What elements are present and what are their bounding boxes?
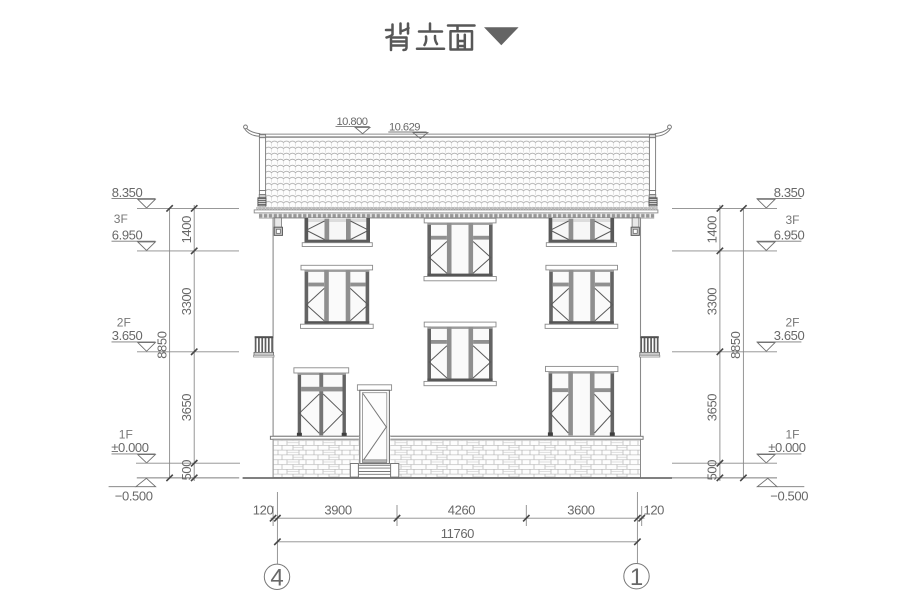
svg-text:−0.500: −0.500: [115, 489, 153, 504]
svg-text:120: 120: [253, 503, 274, 518]
svg-text:8.350: 8.350: [774, 185, 805, 200]
svg-text:1: 1: [630, 564, 643, 591]
svg-text:3300: 3300: [179, 288, 194, 315]
svg-text:3.650: 3.650: [774, 328, 805, 343]
svg-text:11760: 11760: [441, 526, 474, 541]
svg-text:4: 4: [270, 565, 283, 592]
svg-text:6.950: 6.950: [774, 227, 805, 242]
svg-text:500: 500: [705, 460, 720, 481]
svg-text:±0.000: ±0.000: [768, 440, 805, 455]
svg-text:500: 500: [179, 460, 194, 481]
svg-text:8850: 8850: [155, 331, 170, 358]
svg-text:3F: 3F: [786, 213, 800, 227]
svg-text:3900: 3900: [324, 503, 351, 518]
svg-text:±0.000: ±0.000: [111, 440, 148, 455]
svg-text:4260: 4260: [448, 503, 475, 518]
svg-text:8.350: 8.350: [112, 185, 143, 200]
svg-text:−0.500: −0.500: [770, 489, 808, 504]
svg-text:3650: 3650: [179, 394, 194, 421]
svg-text:3650: 3650: [705, 394, 720, 421]
svg-text:120: 120: [644, 503, 665, 518]
svg-text:3300: 3300: [705, 288, 720, 315]
svg-text:8850: 8850: [728, 331, 743, 358]
svg-text:3600: 3600: [567, 503, 594, 518]
svg-text:3.650: 3.650: [112, 328, 143, 343]
svg-text:3F: 3F: [114, 212, 128, 226]
svg-text:6.950: 6.950: [112, 227, 143, 242]
svg-text:1400: 1400: [179, 216, 194, 243]
svg-text:1400: 1400: [705, 216, 720, 243]
